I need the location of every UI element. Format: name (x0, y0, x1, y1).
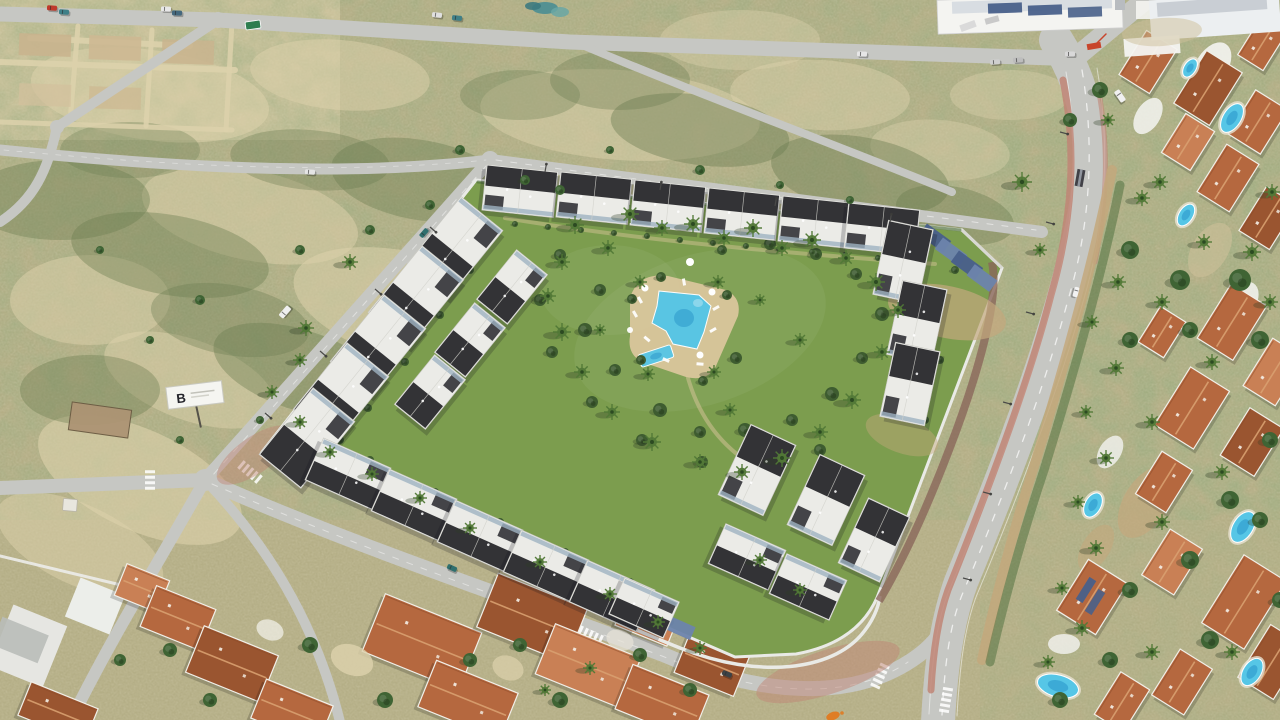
road-left-exit (0, 480, 205, 488)
junction-top (210, 12, 226, 28)
billboard-letter: B (176, 390, 187, 406)
junction-southwest (194, 469, 216, 491)
aerial-photo: B (0, 0, 1280, 720)
aerial-photo-canvas: B (0, 0, 1280, 720)
junction-topleft (50, 120, 64, 134)
